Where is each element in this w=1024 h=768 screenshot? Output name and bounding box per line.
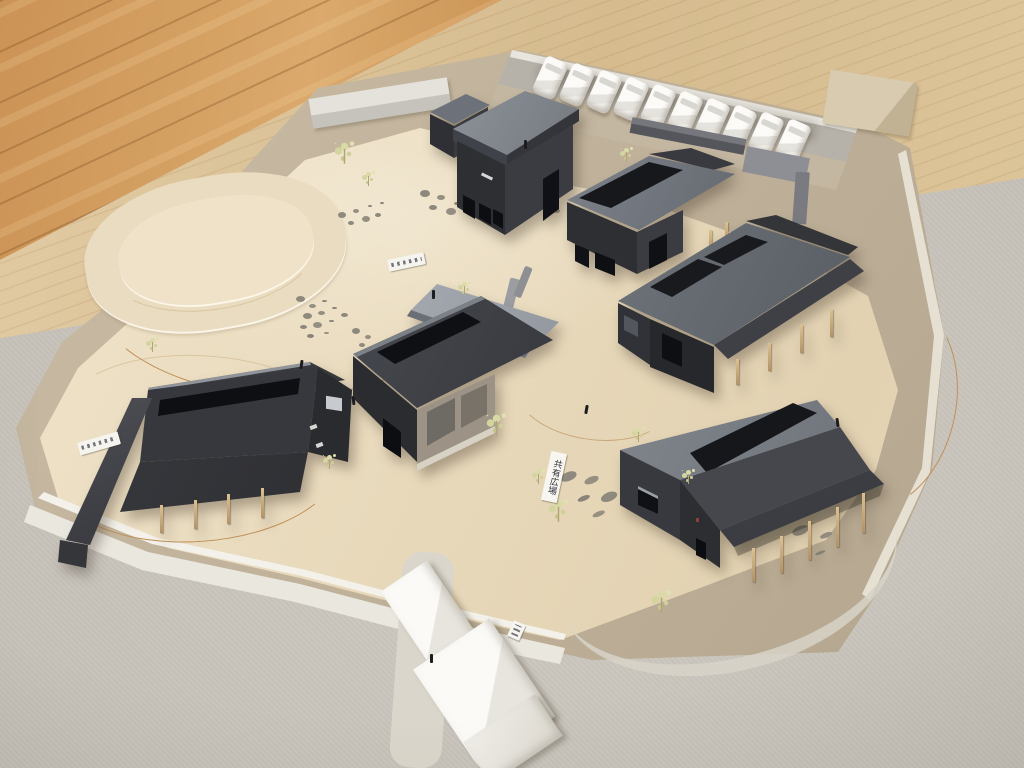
porch-post (800, 325, 803, 353)
model-tree (536, 470, 541, 475)
site-peg (524, 140, 527, 149)
house-4 (343, 276, 567, 486)
porch-post (736, 359, 739, 385)
model-tree (327, 455, 332, 460)
porch-post (194, 500, 197, 529)
model-tree (686, 470, 691, 475)
photo-architectural-model: 共有広場 (0, 0, 1024, 768)
model-tree (462, 282, 467, 287)
model-tree (150, 338, 155, 343)
porch-post (780, 536, 783, 573)
site-peg (430, 654, 433, 663)
model-tree (366, 172, 371, 177)
house-5 (48, 353, 360, 581)
house-6-red-marker (696, 518, 699, 522)
porch-post (261, 488, 264, 518)
site-peg (432, 290, 435, 299)
porch-post (830, 309, 833, 337)
porch-post (836, 507, 839, 547)
porch-post (752, 548, 755, 582)
model-tree (341, 143, 349, 151)
porch-post (160, 505, 163, 533)
house-3 (610, 213, 870, 408)
model-tree (658, 592, 666, 600)
stone-cluster (420, 190, 430, 197)
model-tree (624, 148, 629, 153)
house-6 (612, 390, 897, 615)
stone-cluster (338, 212, 346, 218)
stone-cluster (296, 296, 305, 302)
porch-post (227, 494, 230, 524)
model-tree (493, 415, 501, 423)
porch-post (808, 521, 811, 560)
porch-post (768, 343, 771, 371)
house-5-window (326, 396, 342, 412)
porch-post (862, 493, 865, 533)
model-tree (636, 428, 641, 433)
